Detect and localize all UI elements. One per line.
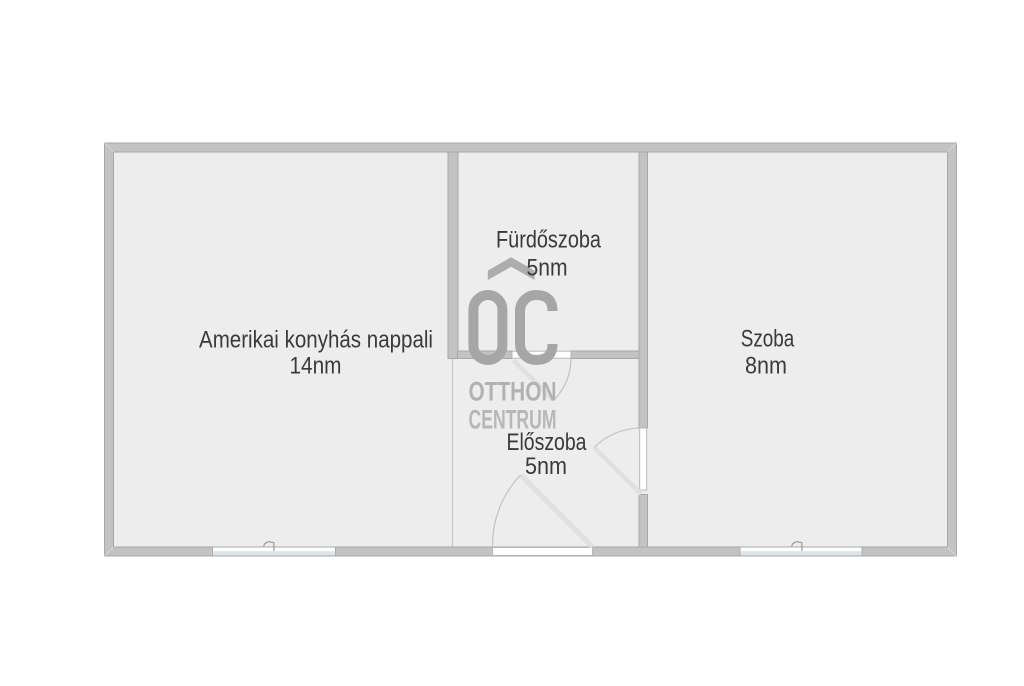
- svg-text:Fürdőszoba: Fürdőszoba: [496, 227, 602, 254]
- svg-text:Előszoba: Előszoba: [507, 429, 588, 456]
- svg-text:Szoba: Szoba: [741, 326, 795, 353]
- svg-text:OTTHON: OTTHON: [469, 376, 557, 406]
- svg-text:14nm: 14nm: [290, 353, 342, 380]
- svg-text:5nm: 5nm: [527, 255, 568, 282]
- svg-text:Amerikai konyhás nappali: Amerikai konyhás nappali: [199, 327, 433, 354]
- svg-text:8nm: 8nm: [745, 353, 787, 380]
- svg-text:5nm: 5nm: [525, 453, 567, 480]
